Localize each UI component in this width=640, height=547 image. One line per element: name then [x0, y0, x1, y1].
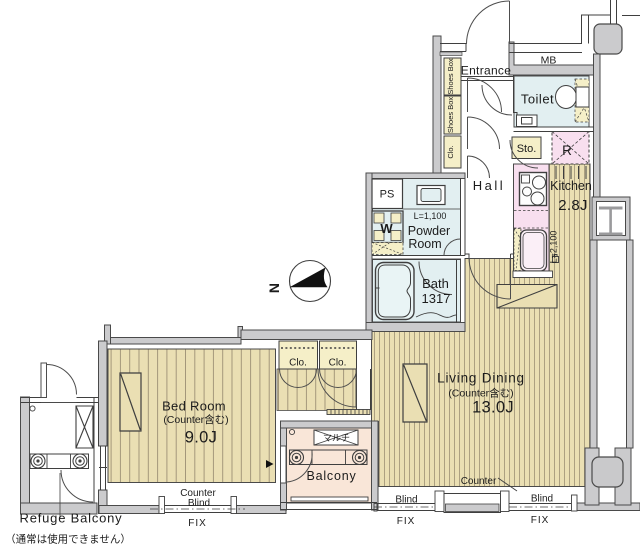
svg-text:Entrance: Entrance — [461, 64, 511, 78]
svg-text:PS: PS — [380, 189, 395, 201]
svg-text:マルチ: マルチ — [323, 433, 350, 443]
svg-text:Counter: Counter — [461, 476, 497, 487]
svg-text:Living Dining: Living Dining — [437, 371, 525, 386]
svg-text:Kitchen: Kitchen — [550, 179, 592, 193]
svg-text:Clo.: Clo. — [446, 145, 455, 158]
svg-text:2.8J: 2.8J — [558, 197, 588, 214]
svg-text:（通常は使用できません）: （通常は使用できません） — [5, 533, 131, 546]
svg-text:Blind: Blind — [531, 494, 553, 505]
svg-text:9.0J: 9.0J — [185, 429, 217, 447]
svg-text:Blind: Blind — [395, 495, 417, 506]
svg-text:Bed Room: Bed Room — [162, 399, 226, 414]
svg-text:Room: Room — [408, 237, 441, 251]
svg-text:Shoes Box: Shoes Box — [446, 58, 455, 95]
svg-text:W: W — [380, 221, 393, 236]
svg-text:Hall: Hall — [473, 178, 505, 193]
svg-text:FIX: FIX — [397, 516, 416, 527]
svg-text:Balcony: Balcony — [306, 469, 356, 483]
svg-text:Clo.: Clo. — [329, 358, 347, 369]
svg-text:Sto.: Sto. — [517, 143, 537, 155]
svg-text:Toilet: Toilet — [521, 92, 554, 107]
svg-text:Blind: Blind — [188, 498, 210, 509]
svg-text:FIX: FIX — [531, 515, 550, 526]
svg-text:R: R — [562, 143, 572, 158]
svg-text:L=2,100: L=2,100 — [549, 231, 559, 264]
svg-text:Refuge Balcony: Refuge Balcony — [20, 511, 123, 526]
svg-text:(Counter含む): (Counter含む) — [163, 413, 228, 426]
svg-text:Powder: Powder — [408, 224, 450, 238]
svg-text:FIX: FIX — [188, 518, 207, 529]
svg-text:MB: MB — [541, 55, 557, 67]
svg-text:Clo.: Clo. — [289, 358, 307, 369]
svg-text:Shoes Box: Shoes Box — [446, 97, 455, 134]
svg-text:1317: 1317 — [422, 291, 451, 306]
svg-text:L=1,100: L=1,100 — [414, 211, 447, 221]
svg-text:Bath: Bath — [422, 276, 449, 291]
svg-text:N: N — [266, 283, 282, 293]
svg-text:13.0J: 13.0J — [472, 399, 514, 417]
